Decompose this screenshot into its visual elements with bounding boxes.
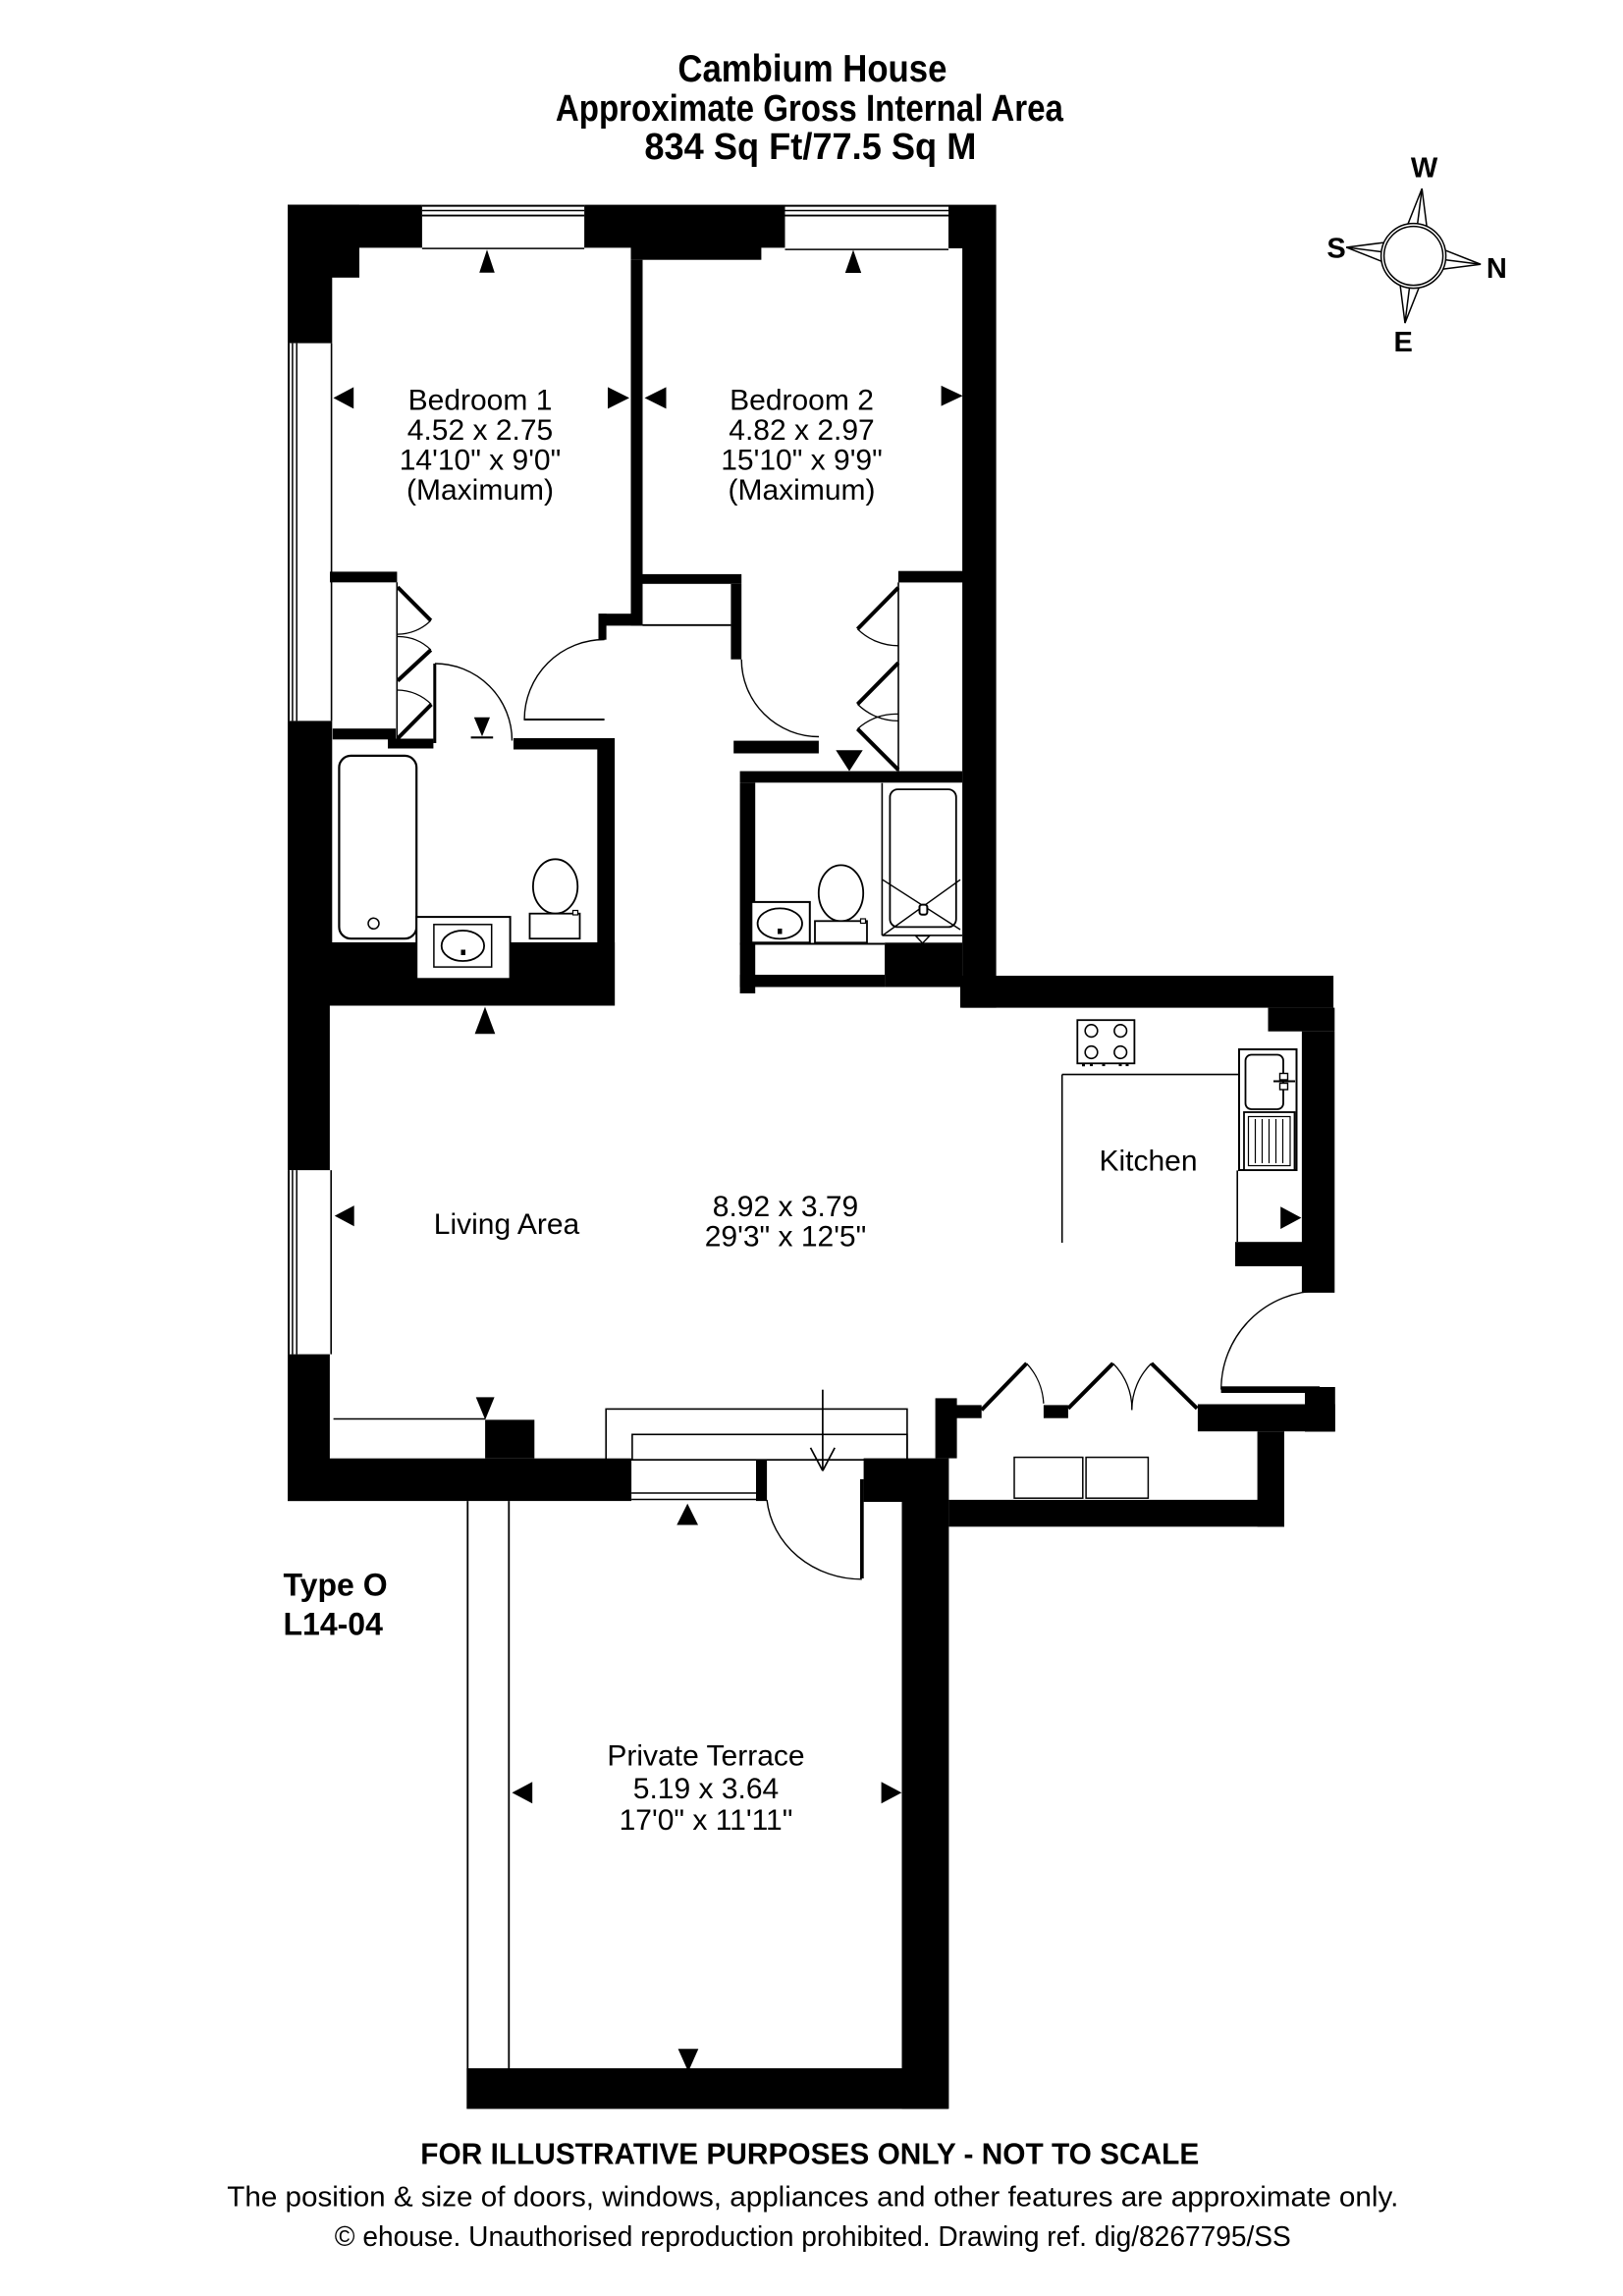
svg-text:© ehouse. Unauthorised reprodu: © ehouse. Unauthorised reproduction proh… — [335, 2221, 1291, 2253]
svg-text:Bedroom 1: Bedroom 1 — [408, 385, 553, 417]
svg-text:Approximate Gross Internal Are: Approximate Gross Internal Area — [556, 88, 1064, 130]
svg-text:Cambium House: Cambium House — [677, 48, 947, 90]
svg-text:S: S — [1326, 234, 1345, 265]
svg-text:Bedroom 2: Bedroom 2 — [730, 385, 874, 417]
svg-text:E: E — [1394, 327, 1413, 358]
svg-text:14'10" x 9'0": 14'10" x 9'0" — [400, 445, 562, 477]
svg-text:5.19 x 3.64: 5.19 x 3.64 — [633, 1773, 779, 1805]
svg-text:FOR ILLUSTRATIVE PURPOSES ONLY: FOR ILLUSTRATIVE PURPOSES ONLY - NOT TO … — [420, 2137, 1199, 2171]
svg-text:8.92 x 3.79: 8.92 x 3.79 — [713, 1191, 858, 1223]
svg-text:The position & size of doors,: The position & size of doors, windows, a… — [227, 2182, 1398, 2214]
svg-text:15'10" x 9'9": 15'10" x 9'9" — [721, 445, 883, 477]
svg-text:4.82 x 2.97: 4.82 x 2.97 — [729, 414, 874, 447]
svg-text:29'3" x 12'5": 29'3" x 12'5" — [705, 1221, 867, 1254]
svg-text:Type O: Type O — [284, 1567, 388, 1602]
svg-text:(Maximum): (Maximum) — [406, 474, 554, 507]
svg-text:W: W — [1411, 152, 1438, 184]
svg-text:Living Area: Living Area — [434, 1208, 580, 1241]
svg-text:Kitchen: Kitchen — [1099, 1146, 1197, 1178]
svg-text:Private Terrace: Private Terrace — [607, 1740, 804, 1773]
svg-text:834 Sq Ft/77.5 Sq M: 834 Sq Ft/77.5 Sq M — [644, 127, 976, 168]
svg-text:(Maximum): (Maximum) — [729, 474, 876, 507]
svg-text:L14-04: L14-04 — [284, 1606, 384, 1641]
svg-text:17'0" x 11'11": 17'0" x 11'11" — [620, 1804, 793, 1837]
svg-text:N: N — [1487, 253, 1507, 285]
svg-text:4.52 x 2.75: 4.52 x 2.75 — [407, 414, 553, 447]
